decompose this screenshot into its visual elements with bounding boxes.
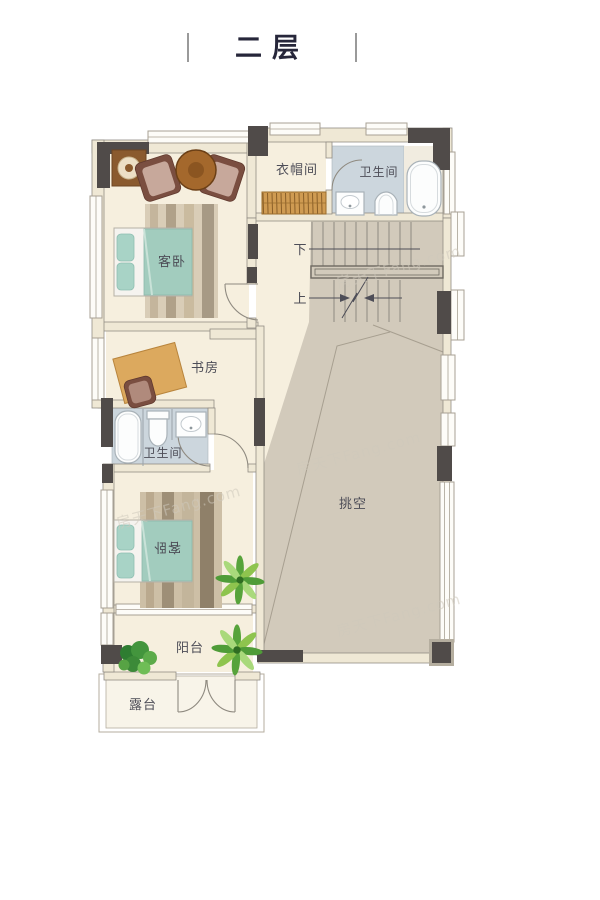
window-study-left (92, 338, 104, 400)
sink (336, 192, 364, 215)
window-void-right-1 (441, 355, 455, 400)
stair-down-label: 下 (293, 243, 306, 258)
study-label: 书房 (191, 360, 219, 376)
pillow (117, 234, 134, 261)
window-void-right-2 (441, 413, 455, 446)
bay-window-right-2 (451, 290, 464, 340)
bathroom-middle-label: 卫生间 (143, 446, 182, 460)
bedroom-bottom-label: 客卧 (153, 539, 181, 555)
pillow (117, 263, 134, 290)
bedroom-top-label: 客卧 (158, 254, 186, 270)
pillow (117, 553, 134, 578)
window-void-right-3 (440, 482, 454, 642)
window-bedroom-top (148, 131, 250, 143)
window-bedroom-bottom-left (101, 490, 113, 608)
hall-floor (214, 408, 258, 471)
toilet (147, 411, 169, 446)
window-bath-top (366, 123, 407, 135)
window-cloakroom-top (270, 123, 320, 135)
floorplan-canvas: 二层 (0, 0, 600, 900)
cloakroom-label: 衣帽间 (276, 162, 318, 178)
page-title: 二层 (235, 33, 309, 64)
window-balcony-left (101, 613, 113, 645)
bathroom-top-label: 卫生间 (359, 165, 398, 179)
window-bedroom-top-left (90, 196, 102, 318)
bed: 客卧 (114, 228, 192, 296)
floorplan-page: 二层 (0, 0, 600, 900)
stair-up-label: 上 (293, 292, 306, 307)
terrace-label: 露台 (129, 698, 157, 713)
title-block: 二层 (188, 33, 356, 64)
balcony-label: 阳台 (176, 641, 204, 656)
corner-column (432, 642, 451, 663)
round-table (176, 150, 216, 190)
void-label: 挑空 (339, 497, 367, 512)
sink (176, 412, 206, 437)
